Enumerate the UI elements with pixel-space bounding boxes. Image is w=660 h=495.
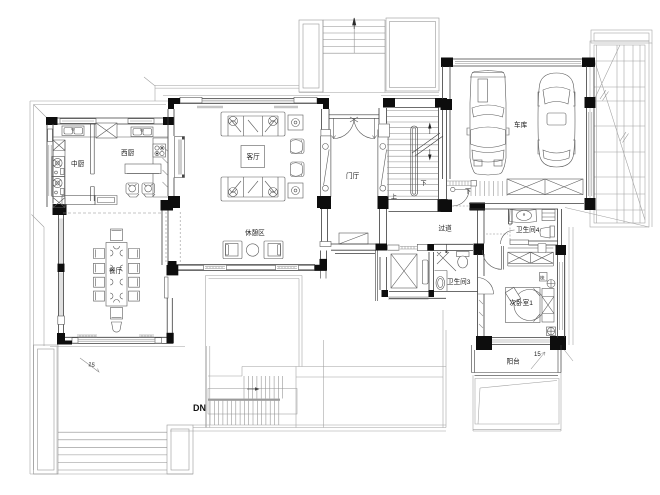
svg-text:下: 下 [465, 189, 471, 196]
svg-text:卫生间3: 卫生间3 [447, 277, 471, 286]
svg-text:上: 上 [391, 193, 397, 201]
svg-text:DN: DN [193, 403, 206, 413]
svg-text:客厅: 客厅 [247, 152, 261, 161]
svg-text:次卧室1: 次卧室1 [510, 298, 534, 307]
svg-text:餐厅: 餐厅 [109, 266, 123, 275]
svg-text:休憩区: 休憩区 [245, 228, 265, 237]
svg-text:下: 下 [421, 181, 427, 188]
svg-text:门厅: 门厅 [346, 171, 360, 180]
svg-text:西厨: 西厨 [121, 149, 135, 157]
svg-text:过道: 过道 [439, 224, 453, 233]
svg-text:中厨: 中厨 [71, 159, 85, 168]
svg-text:卫生间4: 卫生间4 [516, 225, 540, 234]
svg-text:梳: 梳 [540, 275, 545, 282]
svg-text:阳台: 阳台 [507, 357, 521, 366]
svg-text:车库: 车库 [514, 120, 528, 129]
svg-text:15: 15 [534, 352, 541, 358]
